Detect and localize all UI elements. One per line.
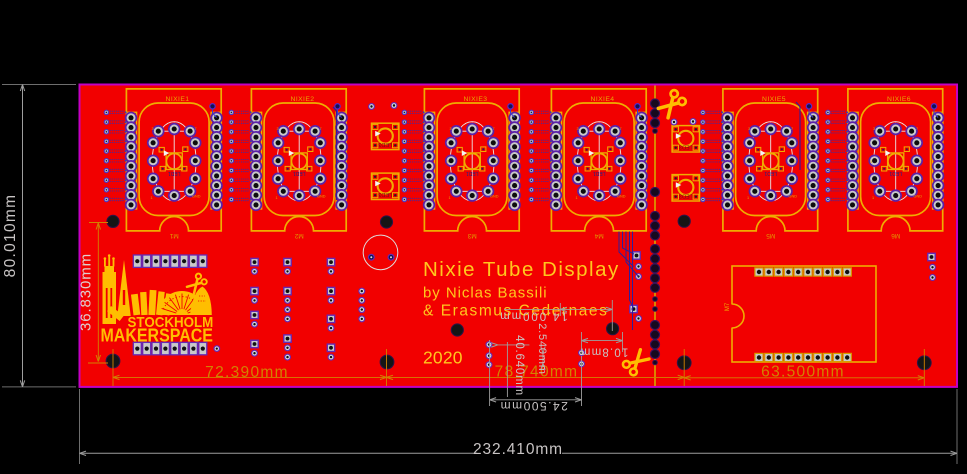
svg-text:M1: M1	[169, 232, 178, 239]
svg-text:by Niclas Bassili: by Niclas Bassili	[423, 285, 548, 302]
svg-text:M3: M3	[467, 232, 476, 239]
svg-text:80.010mm: 80.010mm	[2, 194, 19, 278]
svg-text:63.500mm: 63.500mm	[761, 363, 845, 380]
svg-text:10.8mm: 10.8mm	[580, 346, 629, 358]
svg-text:NIXIE2: NIXIE2	[291, 96, 315, 103]
svg-text:M7: M7	[725, 302, 731, 311]
svg-text:NIXIE6: NIXIE6	[887, 96, 911, 103]
svg-text:2.540mm: 2.540mm	[536, 323, 548, 374]
svg-text:M5: M5	[766, 232, 775, 239]
svg-text:NIXIE1: NIXIE1	[166, 96, 190, 103]
svg-text:2020: 2020	[423, 348, 463, 368]
svg-text:NIXIE3: NIXIE3	[464, 96, 488, 103]
svg-text:MAKERSPACE: MAKERSPACE	[101, 325, 213, 345]
svg-text:NIXIE4: NIXIE4	[591, 96, 615, 103]
svg-text:24.500mm: 24.500mm	[499, 399, 568, 413]
svg-text:NIXIE5: NIXIE5	[762, 96, 786, 103]
svg-text:M2: M2	[294, 232, 303, 239]
svg-text:36.830mm: 36.830mm	[78, 253, 95, 331]
svg-text:14.000mm: 14.000mm	[498, 310, 568, 322]
svg-text:M4: M4	[594, 232, 603, 239]
svg-text:Nixie Tube Display: Nixie Tube Display	[423, 258, 620, 281]
svg-text:M6: M6	[891, 232, 900, 239]
svg-text:40.640mm: 40.640mm	[513, 335, 525, 396]
svg-text:232.410mm: 232.410mm	[473, 441, 563, 458]
svg-text:72.390mm: 72.390mm	[205, 364, 289, 381]
